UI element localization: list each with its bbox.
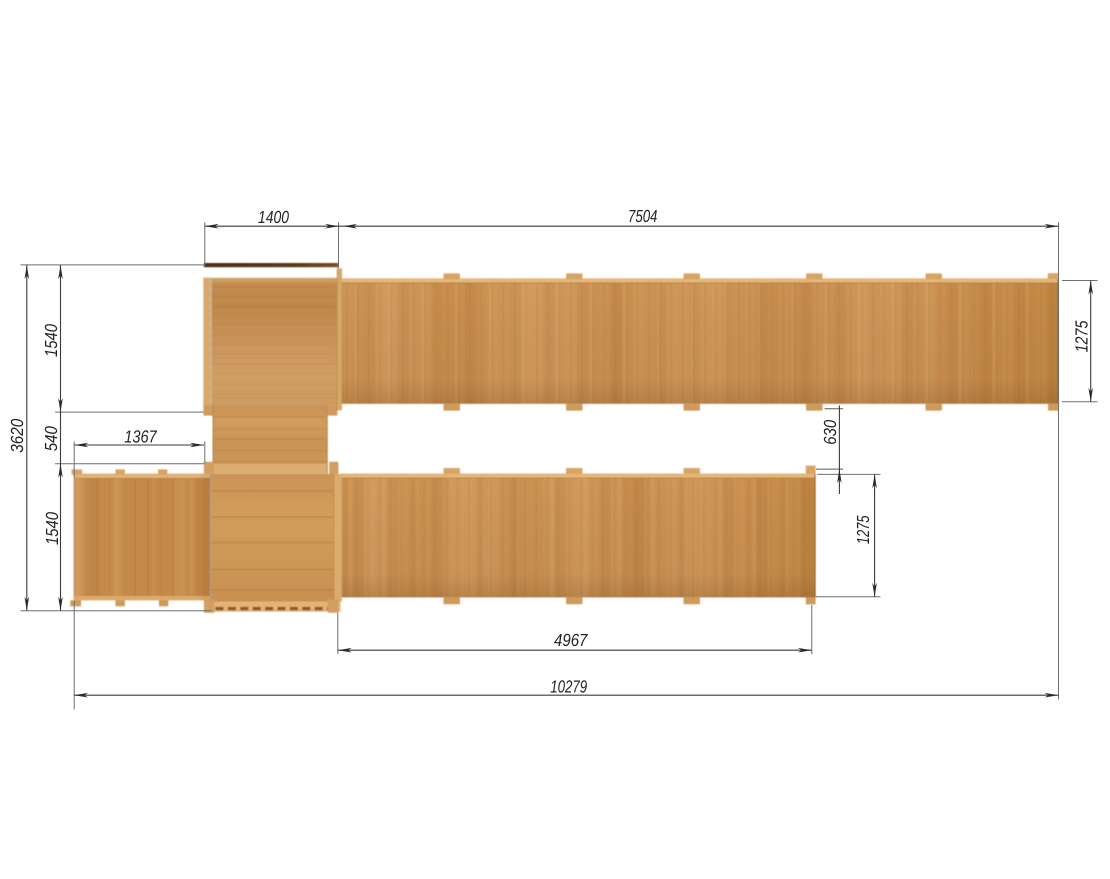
svg-text:540: 540 (41, 426, 61, 451)
svg-text:1275: 1275 (1071, 320, 1091, 352)
svg-text:7504: 7504 (628, 206, 658, 226)
svg-text:1400: 1400 (258, 207, 289, 227)
svg-text:1275: 1275 (853, 515, 873, 544)
svg-text:4967: 4967 (554, 630, 588, 650)
svg-text:1367: 1367 (124, 426, 158, 446)
svg-text:3620: 3620 (7, 418, 27, 452)
svg-text:1540: 1540 (42, 512, 62, 545)
svg-text:10279: 10279 (550, 676, 587, 696)
svg-text:630: 630 (820, 420, 840, 445)
svg-text:1540: 1540 (41, 324, 61, 357)
